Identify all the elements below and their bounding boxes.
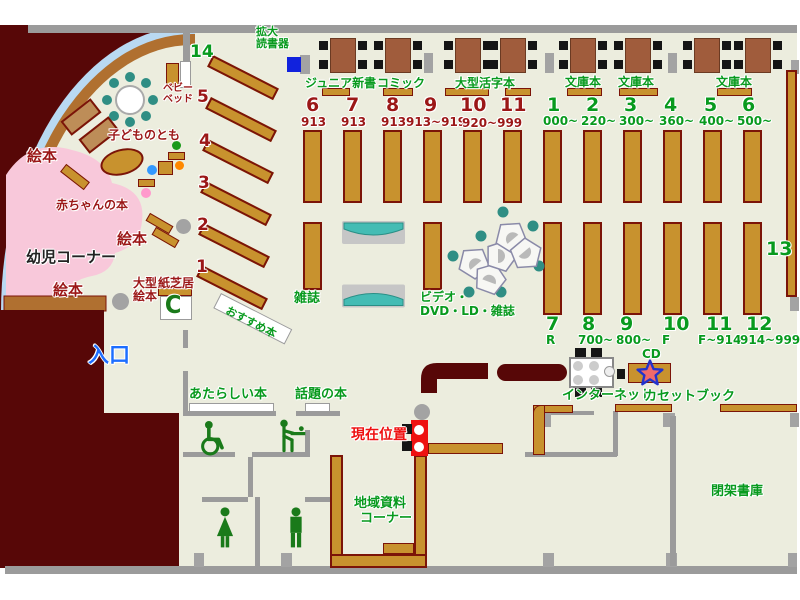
section-number: 2 bbox=[197, 217, 209, 235]
label-baby-bed-l1: ベビー bbox=[163, 84, 193, 95]
pillar bbox=[543, 553, 554, 567]
label-kodomonotomo: 子どものとも bbox=[108, 129, 180, 142]
step-shelf bbox=[158, 161, 173, 175]
chair bbox=[528, 60, 537, 69]
bookshelf bbox=[583, 222, 602, 315]
chair bbox=[559, 60, 568, 69]
shelf-bar bbox=[615, 404, 672, 412]
chair bbox=[489, 41, 498, 50]
chair bbox=[722, 41, 731, 50]
section-number: 9 bbox=[620, 315, 633, 335]
section-number: 4 bbox=[664, 96, 677, 116]
chair bbox=[559, 41, 568, 50]
bookshelf bbox=[383, 130, 402, 203]
chair bbox=[773, 60, 782, 69]
label-comic: コミック bbox=[377, 77, 425, 90]
section-range-shared: 920~999 bbox=[462, 117, 522, 130]
stool bbox=[109, 78, 119, 88]
step-shelf bbox=[168, 152, 185, 160]
round-pillar bbox=[176, 219, 191, 234]
label-video-l1: ビデオ・ bbox=[420, 291, 468, 304]
bookshelf bbox=[503, 130, 522, 203]
chair bbox=[591, 348, 602, 357]
terminal bbox=[573, 375, 583, 385]
bookshelf bbox=[663, 222, 682, 315]
shelf-bar bbox=[428, 443, 503, 454]
label-closed-stacks: 閉架書庫 bbox=[711, 485, 763, 499]
chair bbox=[773, 41, 782, 50]
shelf-bar bbox=[533, 405, 545, 455]
chair bbox=[444, 41, 453, 50]
study-table bbox=[694, 38, 720, 73]
section-number: 7 bbox=[346, 96, 359, 116]
section-range: 913 bbox=[301, 116, 326, 129]
label-video-l2: DVD・LD・雑誌 bbox=[420, 305, 515, 318]
baby-change-icon bbox=[276, 418, 308, 454]
study-table bbox=[385, 38, 411, 73]
label-large-print: 大型活字本 bbox=[455, 77, 515, 90]
study-table bbox=[500, 38, 526, 73]
chair bbox=[614, 60, 623, 69]
terminal bbox=[573, 361, 583, 371]
bookshelf bbox=[543, 130, 562, 203]
chair bbox=[683, 41, 692, 50]
wall-left-top bbox=[183, 25, 190, 62]
pillar bbox=[788, 553, 797, 567]
section-number: 6 bbox=[306, 96, 319, 116]
pillar bbox=[790, 413, 799, 427]
label-reading-device-l2: 読書器 bbox=[256, 38, 289, 50]
label-cassette: カセットブック bbox=[644, 390, 735, 404]
magazine-rack bbox=[342, 284, 405, 308]
section-range: 220~ bbox=[581, 115, 616, 128]
section-13: 13 bbox=[766, 240, 792, 260]
chair bbox=[598, 60, 607, 69]
terminal bbox=[604, 366, 615, 377]
wall bbox=[255, 497, 260, 566]
label-topic-books: 話題の本 bbox=[295, 388, 347, 402]
chair bbox=[734, 60, 743, 69]
label-large-picture-l2: 絵本 bbox=[133, 290, 157, 303]
magnifier-reading-device bbox=[287, 57, 301, 72]
section-number: 8 bbox=[582, 315, 595, 335]
chair bbox=[683, 60, 692, 69]
round-pillar bbox=[414, 404, 430, 420]
wall bbox=[305, 497, 330, 502]
section-number: 8 bbox=[386, 96, 399, 116]
terminal bbox=[589, 375, 599, 385]
bookshelf bbox=[623, 130, 642, 203]
woman-icon bbox=[212, 507, 238, 549]
magazine-rack bbox=[342, 221, 405, 244]
label-picture-books: 絵本 bbox=[27, 149, 57, 165]
stool bbox=[125, 72, 135, 82]
bookshelf bbox=[703, 222, 722, 315]
service-counter-l bbox=[420, 362, 489, 394]
label-baby-books: 赤ちゃんの本 bbox=[56, 199, 128, 212]
man-icon bbox=[283, 507, 309, 549]
label-bunko-2: 文庫本 bbox=[618, 76, 654, 89]
chair bbox=[528, 41, 537, 50]
stool bbox=[141, 78, 151, 88]
section-number: 6 bbox=[742, 96, 755, 116]
chair bbox=[734, 41, 743, 50]
section-range: 913~919 bbox=[406, 116, 466, 129]
study-table bbox=[625, 38, 651, 73]
wheelchair-icon bbox=[196, 420, 230, 456]
pillar bbox=[281, 553, 292, 567]
label-bunko-1: 文庫本 bbox=[565, 76, 601, 89]
bookshelf bbox=[463, 130, 482, 203]
chair bbox=[358, 60, 367, 69]
section-range: 914~999 bbox=[740, 334, 800, 347]
local-shelf-left bbox=[330, 455, 343, 568]
label-picture-books: 絵本 bbox=[53, 283, 83, 299]
pillar bbox=[790, 297, 799, 311]
label-magazines: 雑誌 bbox=[294, 292, 320, 306]
floor-dot bbox=[175, 161, 184, 170]
chair bbox=[358, 41, 367, 50]
chair bbox=[653, 60, 662, 69]
study-table bbox=[455, 38, 481, 73]
service-counter-capsule bbox=[497, 364, 567, 381]
section-number: 10 bbox=[460, 96, 486, 116]
bookshelf bbox=[743, 130, 762, 203]
bookshelf-13 bbox=[786, 70, 797, 297]
local-shelf-right bbox=[414, 455, 427, 568]
shelf-bar bbox=[720, 404, 797, 412]
chair bbox=[598, 41, 607, 50]
step-shelf bbox=[138, 179, 155, 187]
section-range: 500~ bbox=[737, 115, 772, 128]
section-range: 000~ bbox=[543, 115, 578, 128]
label-picture-books: 絵本 bbox=[117, 232, 147, 248]
bookshelf bbox=[743, 222, 762, 315]
wall bbox=[613, 411, 618, 456]
section-number: 1 bbox=[547, 96, 560, 116]
floor-dot bbox=[147, 165, 157, 175]
section-range: 913 bbox=[341, 116, 366, 129]
label-current-location: 現在位置 bbox=[351, 428, 407, 443]
topic-books-shelf bbox=[305, 403, 330, 412]
pillar bbox=[668, 53, 677, 73]
new-books-shelf bbox=[189, 403, 274, 412]
label-new-books: あたらしい本 bbox=[189, 388, 267, 402]
wall bbox=[202, 497, 248, 502]
wall bbox=[248, 457, 253, 497]
section-range: 360~ bbox=[659, 115, 694, 128]
label-baby-bed-l2: ベッド bbox=[163, 95, 193, 106]
section-number: 9 bbox=[424, 96, 437, 116]
wall bbox=[183, 330, 188, 348]
section-range: F~914 bbox=[698, 334, 741, 347]
label-junior-shinsho: ジュニア新書 bbox=[305, 77, 376, 90]
section-number: 3 bbox=[624, 96, 637, 116]
chair bbox=[444, 60, 453, 69]
terminal bbox=[589, 361, 599, 371]
section-range: R bbox=[546, 334, 555, 347]
chair bbox=[489, 60, 498, 69]
floor-dot bbox=[141, 188, 151, 198]
section-range: F bbox=[662, 334, 670, 347]
terminal bbox=[414, 425, 424, 435]
label-reading-device-l1: 拡大 bbox=[256, 26, 278, 38]
stool bbox=[102, 95, 112, 105]
label-bunko-3: 文庫本 bbox=[716, 76, 752, 89]
label-internet: インターネット bbox=[562, 389, 653, 403]
label-large-picture-l1: 大型 bbox=[133, 277, 157, 290]
floor-dot bbox=[172, 141, 181, 150]
video-shelf bbox=[423, 222, 442, 290]
local-shelf-step bbox=[383, 543, 414, 554]
section-number: 12 bbox=[746, 315, 772, 335]
chair bbox=[722, 60, 731, 69]
section-range: 700~ bbox=[578, 334, 613, 347]
pillar bbox=[194, 553, 204, 567]
section-number: 10 bbox=[663, 315, 689, 335]
label-toddler-corner: 幼児コーナー bbox=[26, 250, 116, 266]
study-table bbox=[570, 38, 596, 73]
section-range: 913 bbox=[381, 116, 406, 129]
section-number: 4 bbox=[199, 133, 211, 151]
wall-closed-stacks bbox=[670, 416, 676, 566]
bookshelf bbox=[583, 130, 602, 203]
stool bbox=[141, 111, 151, 121]
wall bbox=[183, 371, 188, 412]
label-kamishibai: 紙芝居 bbox=[158, 277, 194, 290]
star-icon bbox=[636, 359, 664, 387]
chair bbox=[413, 41, 422, 50]
bookshelf bbox=[423, 130, 442, 203]
chair bbox=[319, 60, 328, 69]
label-local-materials-l2: コーナー bbox=[360, 512, 412, 526]
section-number: 3 bbox=[198, 175, 210, 193]
stool bbox=[125, 117, 135, 127]
bookshelf bbox=[663, 130, 682, 203]
pillar bbox=[545, 53, 554, 73]
magazine-shelf bbox=[303, 222, 322, 290]
terminal bbox=[414, 442, 424, 452]
bookshelf bbox=[303, 130, 322, 203]
label-local-materials-l1: 地域資料 bbox=[354, 497, 406, 511]
section-number: 7 bbox=[546, 315, 559, 335]
pillar bbox=[300, 55, 310, 74]
outside-area-left-lower bbox=[104, 413, 179, 568]
label-cd: CD bbox=[642, 348, 661, 361]
section-range: 400~ bbox=[699, 115, 734, 128]
chair bbox=[575, 348, 586, 357]
library-floor-map: 590~599 750~ 490~ 400~ 280~ 000~ おすすめ本 bbox=[0, 0, 800, 600]
chair bbox=[614, 41, 623, 50]
section-number: 5 bbox=[704, 96, 717, 116]
bookshelf bbox=[343, 130, 362, 203]
chair bbox=[319, 41, 328, 50]
study-table bbox=[330, 38, 356, 73]
label-entrance: 入口 bbox=[88, 344, 130, 366]
section-number: 1 bbox=[196, 259, 208, 277]
round-table bbox=[115, 85, 145, 115]
chair bbox=[374, 41, 383, 50]
chair bbox=[617, 369, 625, 379]
phone-icon: C bbox=[165, 292, 182, 318]
section-number: 14 bbox=[190, 44, 214, 62]
stool bbox=[148, 95, 158, 105]
section-number: 11 bbox=[500, 96, 526, 116]
round-pillar bbox=[112, 293, 129, 310]
chair bbox=[413, 60, 422, 69]
wall-top bbox=[28, 25, 797, 33]
section-number: 11 bbox=[706, 315, 732, 335]
section-number: 2 bbox=[586, 96, 599, 116]
section-range: 800~ bbox=[616, 334, 651, 347]
chair bbox=[653, 41, 662, 50]
pillar bbox=[424, 53, 433, 73]
bookshelf bbox=[623, 222, 642, 315]
chair bbox=[374, 60, 383, 69]
section-range: 300~ bbox=[619, 115, 654, 128]
local-shelf-bottom bbox=[330, 554, 427, 568]
bookshelf bbox=[703, 130, 722, 203]
study-table bbox=[745, 38, 771, 73]
section-number: 5 bbox=[197, 89, 209, 107]
